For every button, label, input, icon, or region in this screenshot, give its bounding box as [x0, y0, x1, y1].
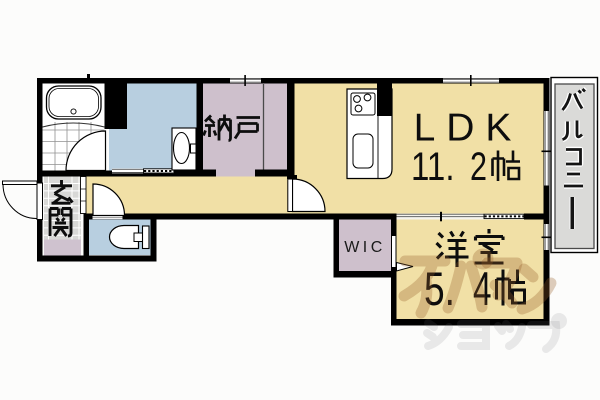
svg-text:LDK: LDK [414, 107, 523, 150]
svg-text:WIC: WIC [344, 239, 386, 256]
svg-text:2: 2 [470, 145, 487, 189]
svg-text:11.: 11. [411, 145, 455, 189]
